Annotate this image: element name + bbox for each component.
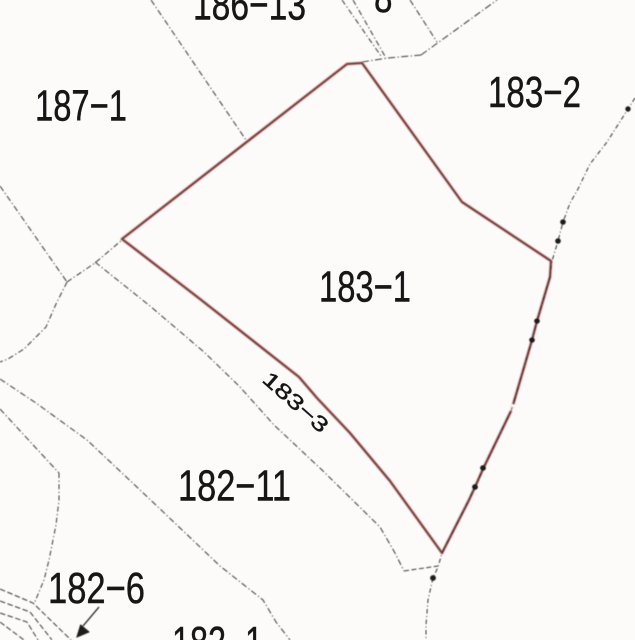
svg-text:183−1: 183−1 bbox=[319, 263, 411, 312]
svg-text:187−1: 187−1 bbox=[35, 82, 127, 131]
svg-text:183−2: 183−2 bbox=[488, 68, 581, 117]
svg-text:186−13: 186−13 bbox=[193, 0, 306, 30]
svg-text:8: 8 bbox=[374, 0, 393, 22]
svg-text:182−11: 182−11 bbox=[178, 462, 291, 511]
svg-text:182−1: 182−1 bbox=[172, 618, 263, 640]
svg-text:182−6: 182−6 bbox=[48, 564, 145, 613]
